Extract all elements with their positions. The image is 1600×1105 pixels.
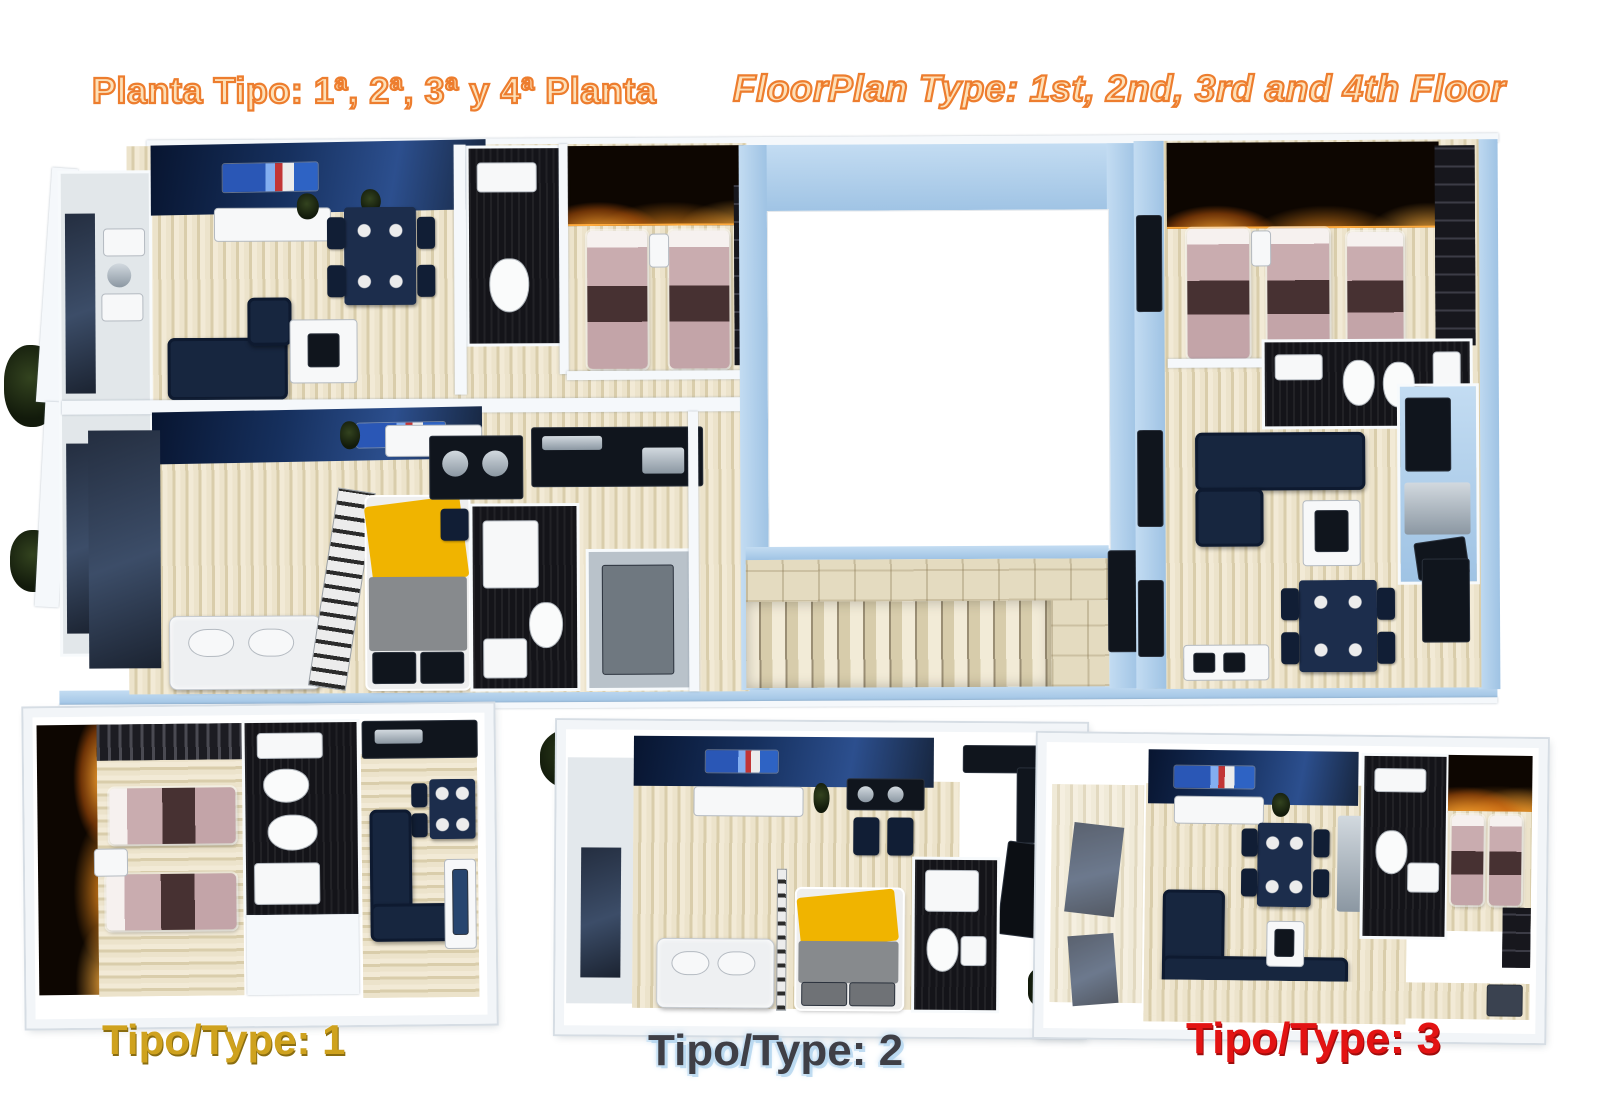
shower-icon [483,520,539,588]
bed-icon [1489,815,1522,905]
dining-chair [1377,632,1395,664]
storage-room [589,551,690,688]
type1-wardrobe [97,723,242,761]
type2-bathroom [914,860,997,1011]
bathroom-sink [483,638,527,678]
storage-door [603,566,674,674]
bar-stool [853,817,879,855]
window-icon [1138,431,1162,526]
fridge-icon [1406,398,1450,470]
terrace-glass [1067,933,1118,1006]
unit-a-sofa [168,338,288,401]
bed-icon [1187,228,1250,358]
title-spanish: Planta Tipo: 1ª, 2ª, 3ª y 4ª Planta [92,70,656,112]
cooktop-icon [542,436,602,450]
type3-bathroom [1362,756,1446,937]
unit-c-sofa-chaise [1195,488,1263,546]
bed-pillow [373,653,415,683]
type2-white-sofa [656,938,774,1009]
decor-icon [309,334,339,366]
dining-chair [417,217,435,249]
type3-floorplan [1034,733,1548,1043]
sink-icon [482,450,508,476]
courtyard-void [767,209,1111,551]
bed-icon [106,873,237,930]
toilet-icon [489,258,529,312]
type1-dining-table [429,779,476,839]
gray-blanket [798,941,898,984]
toilet-icon [1343,360,1375,406]
bed-icon [587,231,648,369]
main-floorplan [39,131,1502,711]
floorplan-poster: Planta Tipo: 1ª, 2ª, 3ª y 4ª Planta Floo… [0,0,1600,1105]
unit-c-sofa [1195,432,1365,491]
unit-a-wall-art [223,162,318,192]
dining-chair [327,265,345,297]
unit-c-sideboard [1183,644,1269,680]
toilet-icon [926,928,958,972]
unit-b-bathroom [472,506,577,689]
courtyard-top-wall [744,143,1137,213]
dining-chair [411,783,427,807]
dining-chair [1313,869,1329,897]
bathroom-sink [477,162,537,192]
room-divider [776,869,787,1011]
terrace-chair [103,228,145,256]
bathroom-sink [254,862,320,905]
dining-chair [1313,829,1329,857]
terrace-table [107,263,131,287]
unit-a-bathroom [469,148,562,343]
bed-icon [1347,232,1404,354]
bar-stool [440,509,468,541]
bathroom-shelf [1374,768,1426,793]
unit-a-dining-table [344,207,417,305]
type1-label: Tipo/Type: 1 [102,1016,345,1064]
window-icon [1139,581,1163,656]
stair-doorway [1109,551,1140,651]
type1-bathroom [245,722,359,915]
unit-c-wardrobe [1435,145,1476,345]
unit-a-bed-glow-wall [566,145,746,226]
bed-icon [1451,815,1484,905]
plant-icon [1272,793,1290,817]
dining-chair [1281,588,1299,620]
nightstand [649,234,669,268]
bed-icon [109,787,236,844]
type2-floorplan [555,720,1087,1038]
interior-wall [454,145,467,395]
unit-c-window-wall [1134,141,1167,689]
unit-a-sofa-chaise [247,298,291,346]
dining-chair [327,217,345,249]
sofa-pillow [248,628,294,656]
type3-bed-glow-wall [1448,755,1533,814]
dining-chair [1241,868,1257,896]
plant-icon [813,783,829,813]
shower-icon [925,870,979,912]
decor-icon [1275,930,1293,956]
bathroom-sink [960,936,986,966]
sink-icon [858,786,874,802]
bed-pillow [850,983,894,1005]
title-english: FloorPlan Type: 1st, 2nd, 3rd and 4th Fl… [733,68,1506,110]
gray-blanket [369,577,467,652]
type2-terrace [566,757,634,1003]
toilet-icon [1375,830,1408,874]
kitchen-island [430,436,522,498]
type3-sideboard [1174,796,1264,825]
interior-wall [567,370,749,380]
bathroom-shelf [257,732,323,759]
staircase [746,601,1051,689]
kitchen-counter [532,427,702,486]
type1-floorplan [23,704,496,1029]
type2-console [693,786,803,817]
window-icon [1487,985,1521,1015]
cooktop-icon [375,729,423,744]
sofa-pillow [717,951,755,975]
terrace-glass [1064,822,1124,917]
type2-bed [796,889,903,1010]
plant-icon [297,193,319,219]
terrace-chair [101,293,143,321]
type3-dining-table [1257,823,1312,908]
nightstand [1251,230,1271,266]
dining-chair [1241,828,1257,856]
tv-icon [1315,511,1347,551]
type2-wall-art [706,750,778,773]
bed-pillow [802,983,846,1005]
terrace-glass [65,214,96,394]
type3-wall-art [1174,766,1254,789]
type3-art-frame [1266,921,1305,967]
dining-chair [1281,632,1299,664]
unit-c-dining-table [1299,580,1377,672]
interior-wall [688,411,699,691]
type1-hall [247,914,360,995]
toilet-icon [529,602,563,648]
type2-counter [847,779,923,810]
bathroom-sink [1275,354,1323,380]
type3-label: Tipo/Type: 3 [1186,1014,1441,1064]
bathroom-sink [1407,862,1439,892]
unit-b-window-glass [88,430,161,668]
tall-cabinet [1423,559,1469,641]
stair-landing [1051,600,1109,686]
dining-chair [411,813,427,837]
nightstand [94,848,128,876]
unit-b-white-sofa [169,615,321,690]
bidet-icon [267,814,317,851]
kitchen-counter [1404,482,1470,534]
unit-a-coffee-table [289,319,357,383]
unit-c-bed-glow-wall [1167,141,1439,228]
bed-pillow [421,653,463,683]
tv-icon [453,870,468,934]
dining-chair [1377,588,1395,620]
type1-tv-stand [444,859,477,949]
sink-icon [442,451,468,477]
unit-c-tv-stand [1302,500,1360,566]
sofa-pillow [671,951,709,975]
window-icon [1137,216,1161,311]
speaker-icon [1224,654,1244,672]
interior-wall [559,144,569,374]
type3-terrace [1050,784,1145,1003]
landing-corridor [746,558,1109,602]
sofa-pillow [188,629,234,657]
bed-icon [669,230,730,368]
oven-icon [642,447,684,473]
toilet-icon [263,768,309,802]
terrace-glass [580,847,621,977]
sink-icon [888,786,904,802]
type1-kitchen-counter [362,721,476,758]
plant-icon [340,421,360,449]
dining-chair [417,265,435,297]
bar-stool [887,817,913,855]
speaker-icon [1194,654,1214,672]
type3-wardrobe [1502,908,1531,968]
bed-icon [1267,228,1330,358]
unit-c-kitchen [1400,386,1477,581]
type2-label: Tipo/Type: 2 [648,1026,903,1076]
type1-bed-glow-wall [37,725,102,996]
